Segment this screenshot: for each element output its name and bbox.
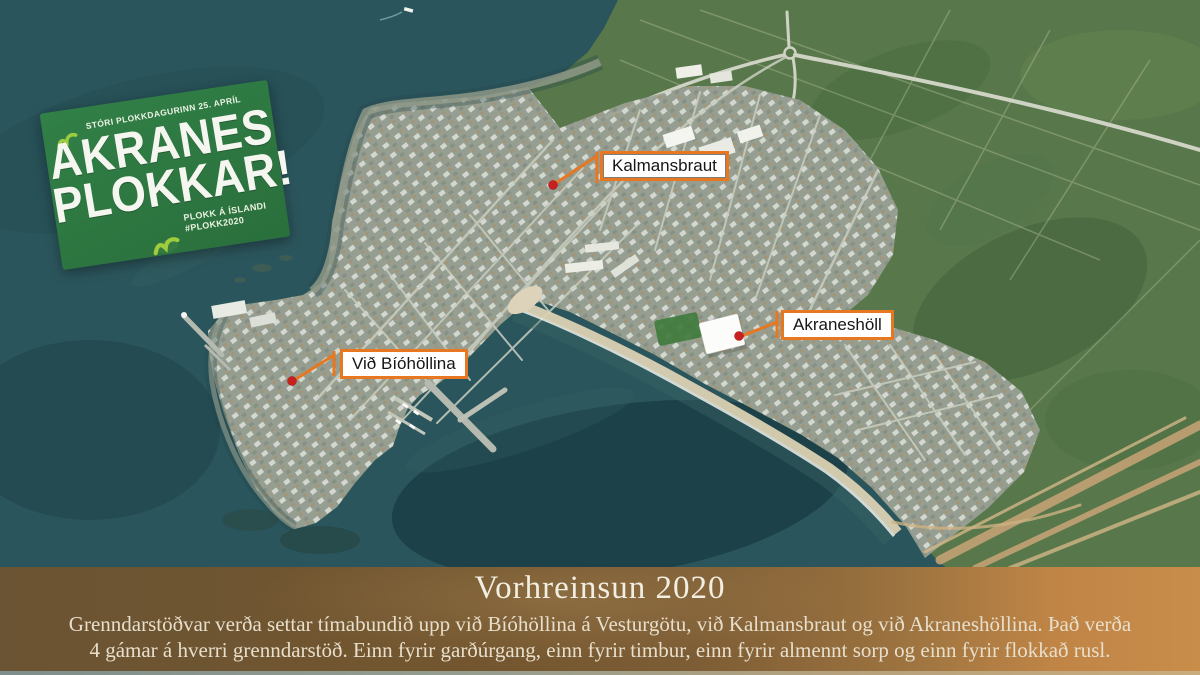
campaign-badge: STÓRI PLOKKDAGURINN 25. APRÍL AKRANES PL…	[40, 80, 291, 270]
banner-body: Grenndarstöðvar verða settar tímabundið …	[0, 612, 1200, 663]
marker-akraneshol	[735, 332, 744, 341]
label-akraneshol: Akraneshöll	[781, 310, 894, 340]
label-vid-biohollina: Við Bíóhöllina	[340, 349, 468, 379]
marker-vid-biohollina	[288, 377, 297, 386]
bottom-map-sliver	[0, 671, 1200, 675]
info-banner: Vorhreinsun 2020 Grenndarstöðvar verða s…	[0, 567, 1200, 671]
banner-body-line2: 4 gámar á hverri grenndarstöð. Einn fyri…	[0, 638, 1200, 664]
flyer-image: Kalmansbraut Akraneshöll Við Bíóhöllina …	[0, 0, 1200, 675]
banner-body-line1: Grenndarstöðvar verða settar tímabundið …	[0, 612, 1200, 638]
label-kalmansbraut: Kalmansbraut	[600, 151, 729, 181]
marker-kalmansbraut	[549, 181, 558, 190]
banner-title: Vorhreinsun 2020	[0, 570, 1200, 607]
